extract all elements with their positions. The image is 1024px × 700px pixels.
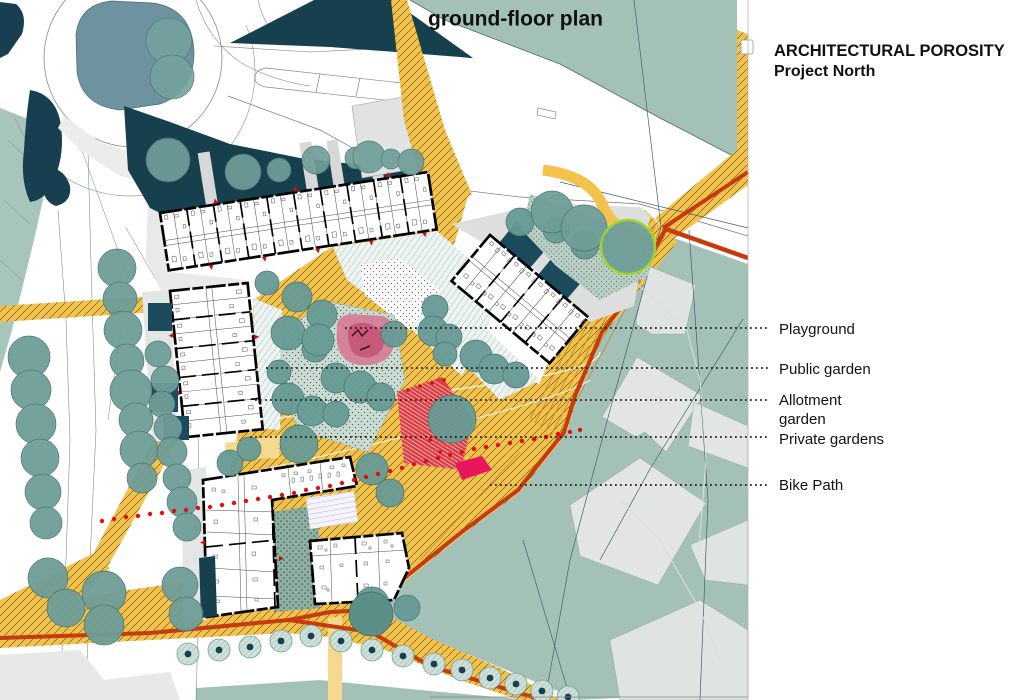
svg-text:Bike Path: Bike Path	[779, 477, 843, 494]
svg-text:ground-floor plan: ground-floor plan	[428, 8, 603, 31]
svg-text:Public garden: Public garden	[779, 361, 871, 378]
svg-text:Allotment: Allotment	[779, 392, 842, 409]
svg-text:ARCHITECTURAL POROSITY: ARCHITECTURAL POROSITY	[774, 42, 1005, 60]
svg-text:Playground: Playground	[779, 321, 855, 338]
svg-text:Private gardens: Private gardens	[779, 431, 884, 448]
svg-text:Project North: Project North	[774, 63, 875, 80]
svg-text:garden: garden	[779, 411, 826, 428]
